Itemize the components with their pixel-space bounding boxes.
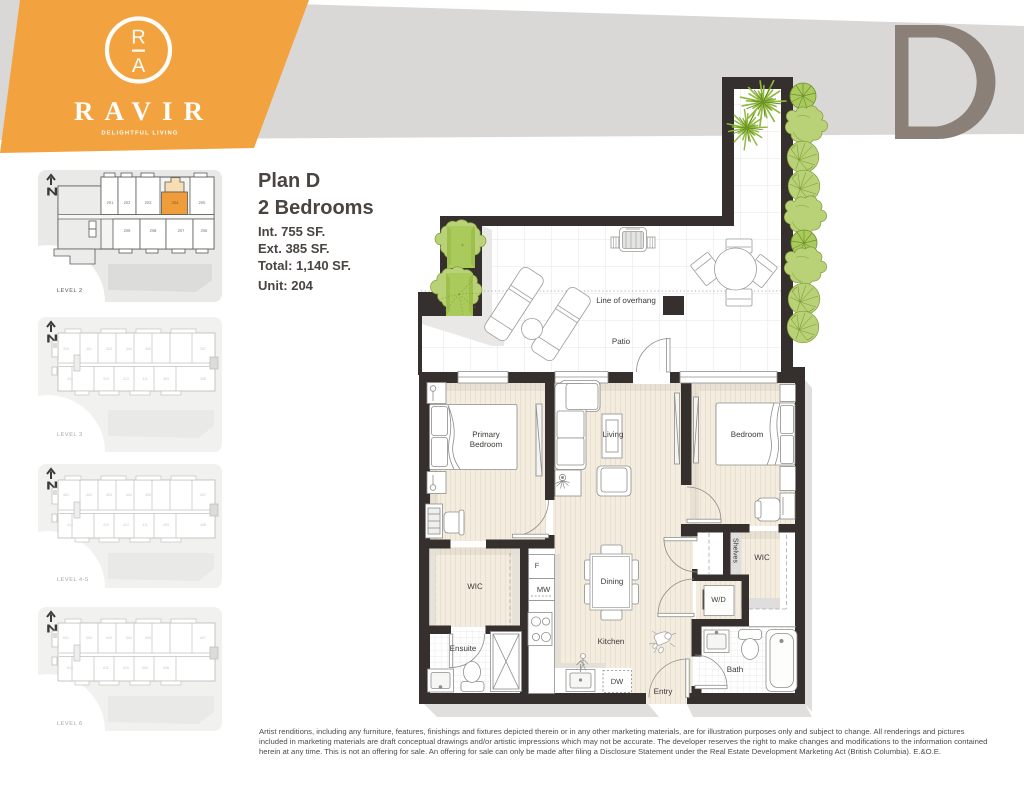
svg-text:LEVEL 4-5: LEVEL 4-5: [57, 577, 89, 583]
svg-text:LEVEL 2: LEVEL 2: [57, 288, 83, 294]
svg-text:301: 301: [86, 347, 92, 351]
svg-text:202: 202: [124, 200, 131, 205]
svg-text:413: 413: [103, 523, 109, 527]
svg-text:Bath: Bath: [727, 665, 743, 674]
svg-text:414: 414: [67, 523, 73, 527]
svg-text:WIC: WIC: [467, 582, 483, 591]
svg-text:A: A: [132, 55, 146, 77]
svg-text:Shelves: Shelves: [732, 538, 740, 563]
svg-text:407: 407: [200, 493, 206, 497]
svg-text:Ensuite: Ensuite: [450, 644, 477, 653]
svg-text:612: 612: [67, 666, 73, 670]
svg-text:F: F: [535, 561, 540, 570]
svg-text:314: 314: [67, 377, 73, 381]
svg-text:411: 411: [142, 523, 148, 527]
svg-text:608: 608: [163, 666, 169, 670]
svg-text:308: 308: [200, 377, 206, 381]
svg-text:606: 606: [145, 636, 151, 640]
svg-text:315: 315: [63, 347, 69, 351]
svg-text:306: 306: [145, 347, 151, 351]
svg-text:313: 313: [103, 377, 109, 381]
svg-text:607: 607: [200, 636, 206, 640]
svg-text:Bedroom: Bedroom: [470, 440, 503, 449]
svg-text:W/D: W/D: [711, 595, 726, 604]
svg-text:604: 604: [126, 636, 132, 640]
svg-text:409: 409: [163, 523, 169, 527]
svg-text:404: 404: [126, 493, 132, 497]
svg-text:206: 206: [201, 228, 208, 233]
svg-text:Dining: Dining: [601, 577, 624, 586]
svg-text:RAVIR: RAVIR: [74, 96, 214, 126]
svg-text:307: 307: [200, 347, 206, 351]
svg-text:406: 406: [145, 493, 151, 497]
svg-text:LEVEL 3: LEVEL 3: [57, 432, 83, 438]
svg-text:611: 611: [103, 666, 109, 670]
svg-text:LEVEL 6: LEVEL 6: [57, 721, 83, 727]
svg-text:WIC: WIC: [754, 553, 770, 562]
svg-text:304: 304: [126, 347, 132, 351]
svg-text:Primary: Primary: [472, 430, 500, 439]
svg-text:408: 408: [200, 523, 206, 527]
svg-text:Living: Living: [603, 430, 624, 439]
svg-text:DW: DW: [611, 677, 624, 686]
svg-text:204: 204: [172, 200, 179, 205]
svg-text:Entry: Entry: [654, 687, 673, 696]
svg-text:403: 403: [106, 493, 112, 497]
svg-text:Bedroom: Bedroom: [731, 430, 764, 439]
svg-text:DELIGHTFUL LIVING: DELIGHTFUL LIVING: [101, 130, 178, 137]
svg-text:312: 312: [123, 377, 129, 381]
svg-text:601: 601: [63, 636, 69, 640]
svg-text:MW: MW: [537, 585, 551, 594]
svg-text:610: 610: [123, 666, 129, 670]
svg-text:402: 402: [86, 493, 92, 497]
svg-text:209: 209: [124, 228, 131, 233]
svg-text:R: R: [131, 27, 145, 49]
svg-text:603: 603: [106, 636, 112, 640]
svg-text:303: 303: [106, 347, 112, 351]
svg-text:602: 602: [86, 636, 92, 640]
svg-text:Patio: Patio: [612, 337, 631, 346]
svg-text:207: 207: [178, 228, 185, 233]
svg-text:609: 609: [142, 666, 148, 670]
svg-text:201: 201: [107, 200, 114, 205]
svg-text:Line of overhang: Line of overhang: [596, 296, 656, 305]
svg-text:401: 401: [63, 493, 69, 497]
svg-text:208: 208: [150, 228, 157, 233]
svg-text:205: 205: [199, 200, 206, 205]
svg-text:412: 412: [123, 523, 129, 527]
svg-text:311: 311: [142, 377, 148, 381]
svg-text:Kitchen: Kitchen: [598, 637, 625, 646]
svg-text:203: 203: [145, 200, 152, 205]
svg-text:309: 309: [163, 377, 169, 381]
